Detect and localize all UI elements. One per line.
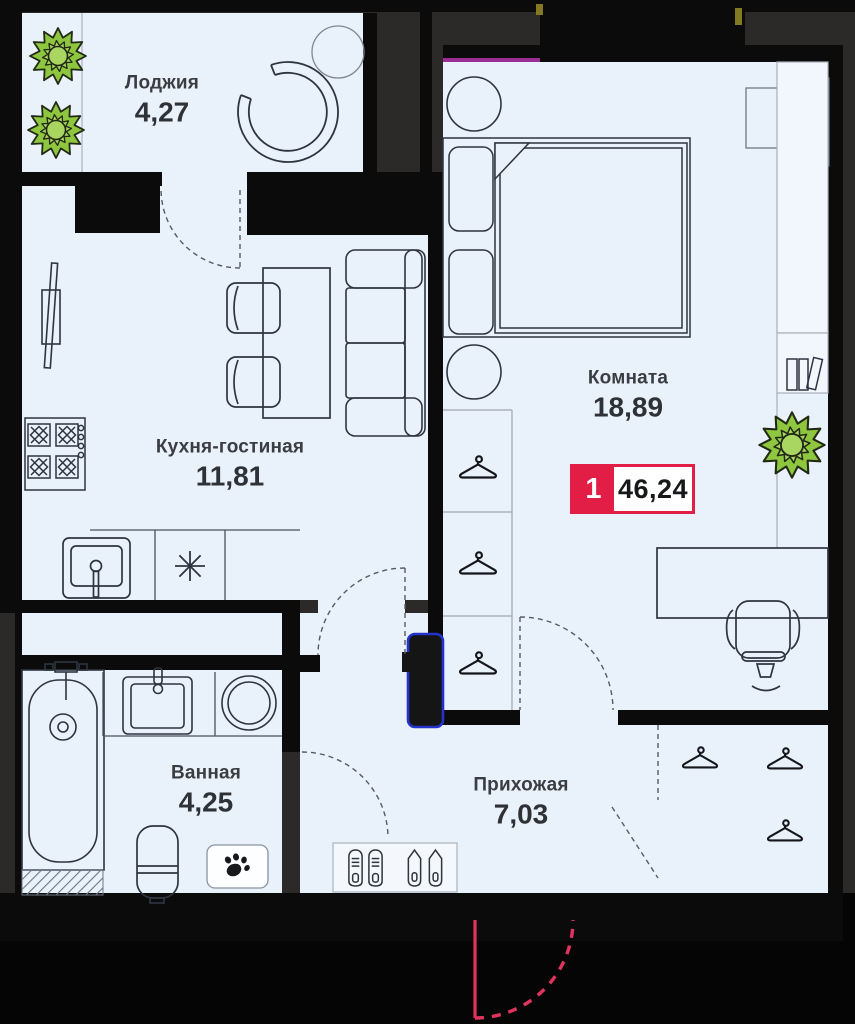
wall-stub-top bbox=[420, 12, 432, 174]
badge-room-count: 1 bbox=[573, 467, 614, 511]
vent-shaft bbox=[402, 634, 443, 727]
kitchen-door-gap bbox=[318, 600, 405, 613]
shoe-mat bbox=[333, 843, 457, 892]
burner bbox=[28, 424, 50, 446]
burner bbox=[56, 424, 78, 446]
shaft-strip-floor bbox=[22, 613, 282, 655]
burner bbox=[56, 456, 78, 478]
bedroom-door-gap bbox=[520, 710, 618, 725]
pet-mat bbox=[207, 845, 268, 888]
badge-total-area: 46,24 bbox=[614, 467, 692, 511]
wall-kitchen-bottom bbox=[15, 600, 300, 613]
apartment-floorplan: Лоджия 4,27 Кухня-гостиная 11,81 Комната… bbox=[0, 0, 855, 1024]
window-marker-magenta bbox=[443, 58, 540, 62]
bedroom-window-block bbox=[540, 0, 745, 62]
burner bbox=[28, 456, 50, 478]
wall-right bbox=[828, 45, 843, 941]
wall-loggia-right bbox=[363, 13, 377, 186]
window-tick-left bbox=[536, 4, 543, 15]
apartment-badge: 1 46,24 bbox=[570, 464, 695, 514]
wall-bedroom-bottom-left bbox=[443, 710, 520, 725]
bath-step-hatch bbox=[22, 870, 103, 895]
wall-block-center bbox=[247, 172, 443, 235]
loggia-floor bbox=[22, 13, 363, 172]
wall-bathroom-right bbox=[282, 600, 300, 752]
book-shelf bbox=[777, 333, 828, 393]
hob-star-icon bbox=[175, 551, 205, 581]
wall-bottom bbox=[0, 893, 843, 941]
window-tick-right bbox=[735, 8, 742, 25]
wall-stub-hall bbox=[300, 655, 320, 672]
shaft-box bbox=[408, 634, 443, 727]
floorplan-drawing bbox=[0, 0, 855, 1024]
loggia-door-gap bbox=[162, 172, 247, 186]
outside-left-strip bbox=[0, 613, 15, 893]
wall-bedroom-bottom-right bbox=[618, 710, 843, 725]
shaft-tab bbox=[402, 652, 411, 672]
kitchen-window-block bbox=[75, 172, 160, 233]
